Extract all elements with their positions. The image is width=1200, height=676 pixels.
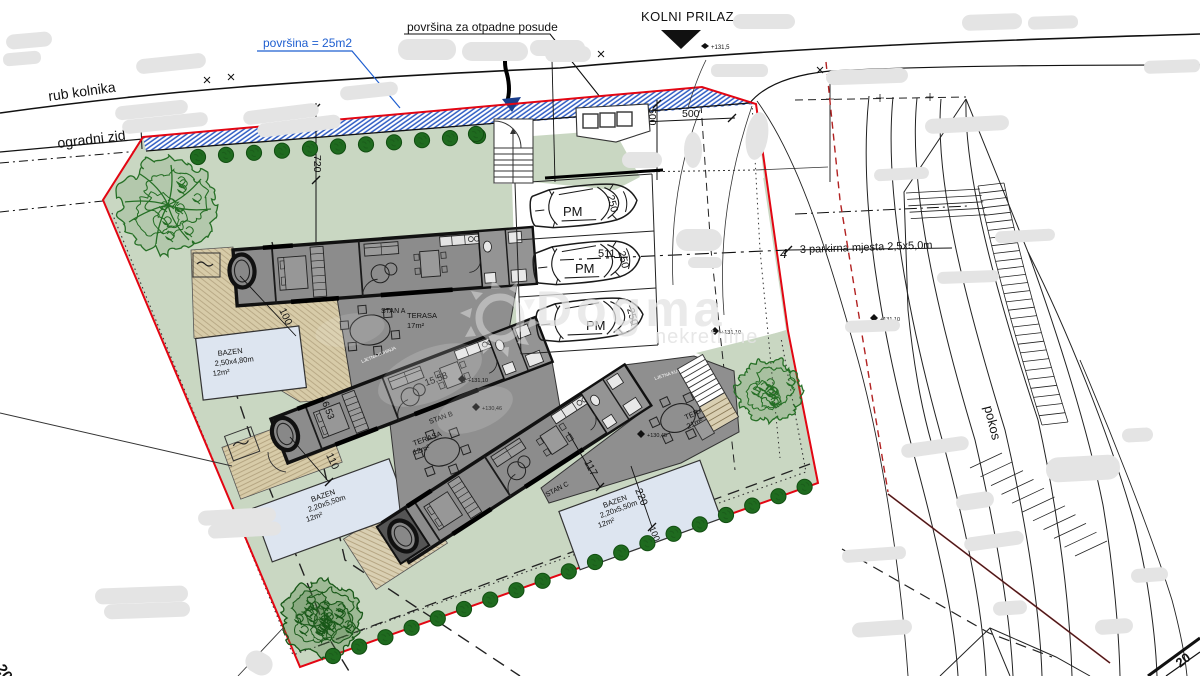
svg-text:511: 511 [598, 248, 616, 260]
svg-text:17m²: 17m² [407, 321, 425, 330]
svg-text:+131,5: +131,5 [711, 45, 730, 51]
svg-text:TERASA: TERASA [407, 311, 437, 320]
svg-text:+130,45: +130,45 [647, 433, 667, 439]
svg-text:nekretnine: nekretnine [655, 326, 758, 348]
svg-text:720: 720 [311, 155, 323, 173]
svg-text:površina za otpadne posude: površina za otpadne posude [407, 20, 558, 34]
svg-text:PM: PM [575, 261, 595, 276]
svg-text:STAN A: STAN A [381, 308, 406, 315]
svg-text:KOLNI PRILAZ: KOLNI PRILAZ [641, 9, 734, 24]
svg-text:površina = 25m2: površina = 25m2 [263, 36, 352, 50]
svg-text:PM: PM [563, 204, 583, 219]
